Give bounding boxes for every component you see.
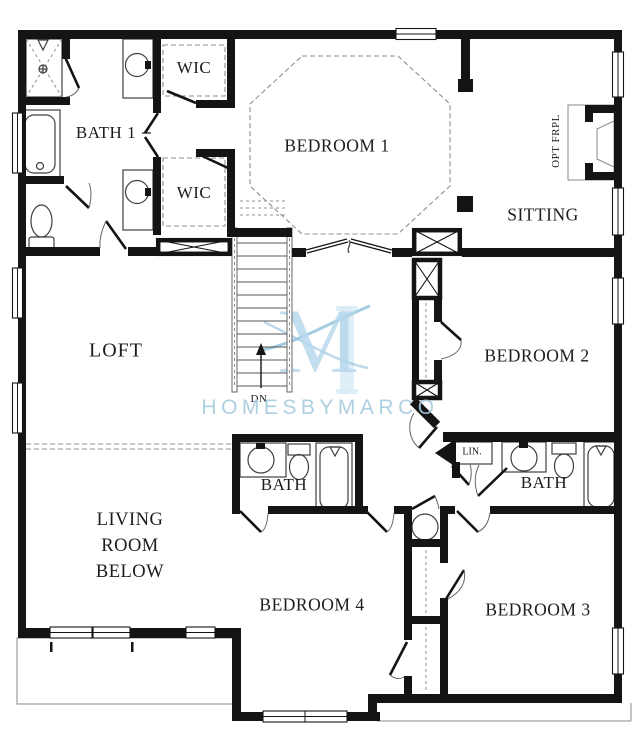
sink-vanity [240,443,286,477]
room-label-bedroom4: BEDROOM 4 [259,595,364,616]
chase-box [414,260,440,298]
bathtub [584,442,618,510]
room-label-living-below: LIVING ROOM BELOW [96,507,164,585]
pedestal-sink [123,170,153,230]
room-label-bath1: BATH 1 [76,123,136,143]
sink-vanity [502,442,546,472]
toilet [29,205,54,250]
hall-chamfer-wall [435,439,456,467]
tub-faucet-icon [596,446,606,455]
room-label-bedroom1: BEDROOM 1 [284,136,389,157]
room-label-bedroom3: BEDROOM 3 [485,600,590,621]
room-label-wic-upper: WIC [177,58,212,78]
roof-line [377,703,631,721]
room-label-sitting: SITTING [507,205,579,226]
room-label-wic-lower: WIC [177,183,212,203]
room-label-bath3: BATH [521,473,567,493]
living-below-line1: LIVING [96,507,164,533]
room-label-opt-fireplace: OPT FRPL [550,114,562,168]
watermark-monogram: M [262,290,370,394]
room-label-bedroom2: BEDROOM 2 [484,346,589,367]
room-label-bath2: BATH [261,475,307,495]
watermark-wordmark: HOMESBYMARCO [201,396,438,420]
room-label-loft: LOFT [89,340,143,363]
bathtub [316,443,352,513]
chase-box [414,230,460,254]
porch-outline [17,638,233,704]
living-below-line2: ROOM [96,533,164,559]
room-label-linen: LIN. [462,447,481,458]
water-heater-icon [412,514,438,540]
shower-head-icon [38,40,48,50]
living-below-line3: BELOW [96,559,164,585]
open-to-below-line [26,444,232,449]
tub-faucet-icon [330,447,340,456]
chase-box [158,240,230,254]
pedestal-sink [123,39,153,98]
floor-plan: M [0,0,640,729]
shower-stall [26,39,62,97]
